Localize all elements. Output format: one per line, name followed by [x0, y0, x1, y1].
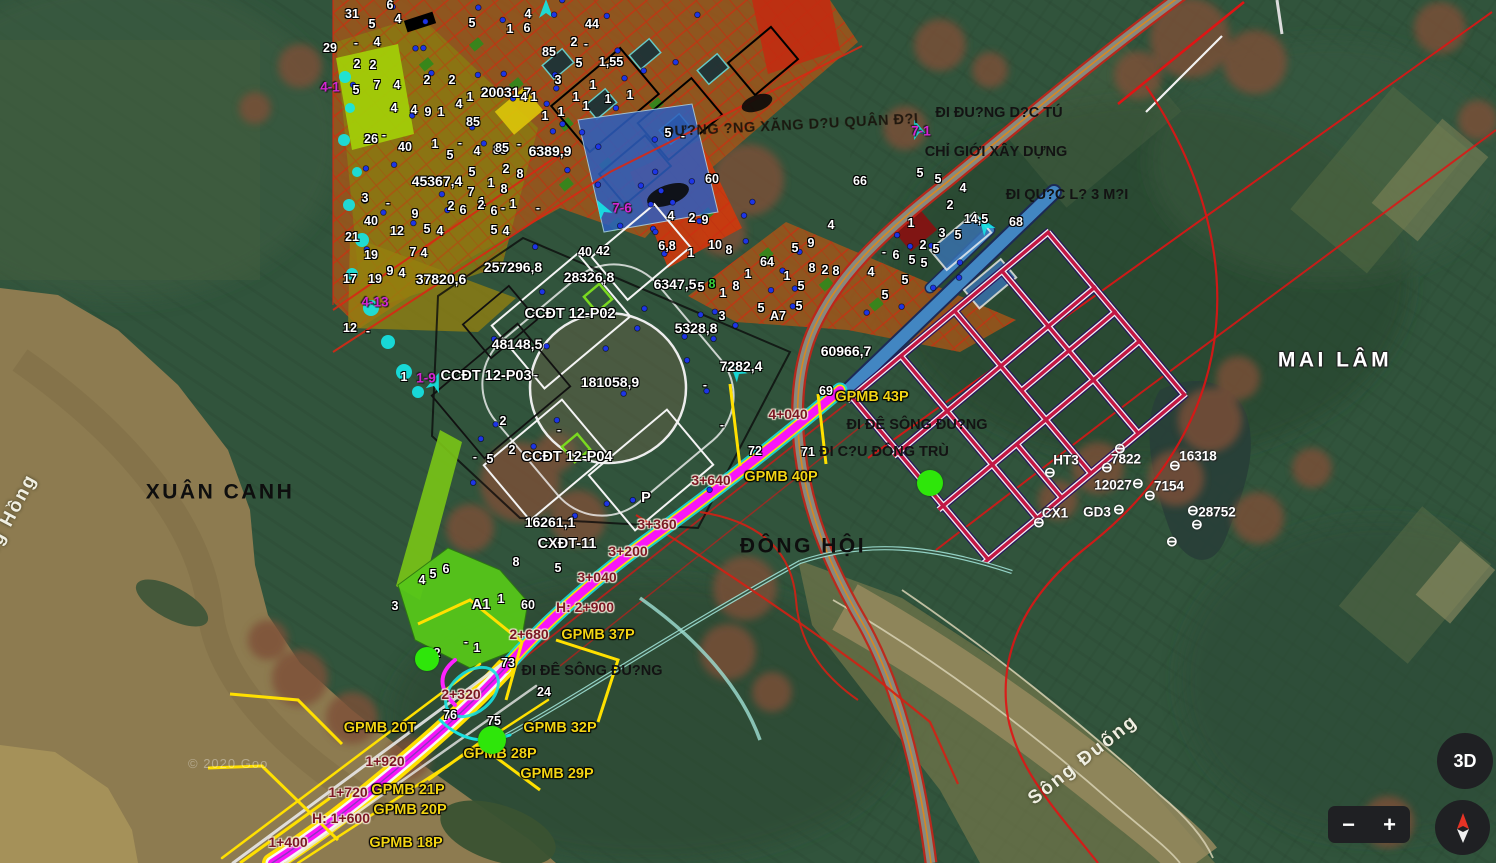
num-label: 42 — [596, 245, 610, 258]
green-point-marker — [415, 647, 439, 671]
survey-label: 16318 — [1179, 449, 1217, 463]
map-canvas[interactable]: XUÂN CANHĐÔNG HỘIMAI LÂMSông ĐuốngSông H… — [0, 0, 1496, 863]
num-label: 5 — [955, 229, 962, 242]
num-label: 1 — [590, 79, 597, 92]
num-label: 5 — [487, 453, 494, 466]
zoom-out-button[interactable]: − — [1336, 814, 1361, 836]
num-label: 2 — [822, 264, 829, 277]
num-label: 5 — [447, 149, 454, 162]
num-label: 5 — [909, 254, 916, 267]
compass-needle-icon — [1443, 808, 1483, 848]
area-label: 5328,8 — [675, 321, 718, 335]
num-label: 3 — [719, 310, 726, 323]
num-label: 85 — [466, 116, 480, 129]
num-label: - — [557, 424, 561, 437]
survey-point-icon: ⊖ — [1033, 515, 1045, 529]
num-label: 5 — [935, 173, 942, 186]
num-label: 1 — [627, 89, 634, 102]
num-label: 5 — [430, 568, 437, 581]
num-label: 4 — [503, 225, 510, 238]
num-label: 1 — [432, 138, 439, 151]
area-label: 181058,9 — [581, 375, 639, 389]
zone-label: CCĐT 12-P04 — [521, 450, 612, 465]
chain-label: 3+040 — [577, 570, 616, 584]
num-label: - — [386, 197, 390, 210]
num-label: 1 — [507, 23, 514, 36]
num-label: 3 — [362, 192, 369, 205]
num-label: 5 — [555, 562, 562, 575]
copyright-watermark: © 2020 Goo — [188, 756, 268, 771]
num-label: 1 — [498, 593, 505, 606]
num-label: 40 — [398, 141, 412, 154]
num-label: 5 — [353, 84, 360, 97]
num-label: 9 — [412, 208, 419, 221]
num-label: 5 — [424, 223, 431, 236]
num-label: 4 — [411, 104, 418, 117]
chain-label: 4+040 — [768, 407, 807, 421]
magenta-label: 7-1 — [911, 124, 931, 138]
num-label: 5 — [921, 257, 928, 270]
num-label: 29 — [323, 42, 337, 55]
num-label: 1 — [542, 110, 549, 123]
area-label: 45367,4 — [412, 174, 463, 188]
place-label: ĐÔNG HỘI — [740, 536, 866, 557]
num-label: 1 — [438, 106, 445, 119]
num-label: 2 — [449, 74, 456, 87]
num-label: 2 — [509, 444, 516, 457]
survey-point-icon: ⊖ — [1144, 488, 1156, 502]
area-label: 6347,5 — [654, 277, 697, 291]
green-point-marker — [478, 726, 506, 754]
num-label: 66 — [853, 175, 867, 188]
survey-point-icon: ⊖ — [1166, 534, 1178, 548]
num-label: 64 — [760, 256, 774, 269]
gpmb-label: GPMB 21P — [371, 783, 444, 798]
gpmb-label: GPMB 40P — [744, 470, 817, 485]
num-label: 1 — [745, 268, 752, 281]
num-label: - — [464, 636, 468, 649]
chain-label: 3+360 — [637, 517, 676, 531]
num-label: 2 — [920, 239, 927, 252]
area-label: 28326,8 — [564, 270, 615, 284]
num-label: 3 — [555, 74, 562, 87]
road-label: ĐI ĐÊ SÔNG ĐU?NG — [847, 418, 988, 433]
magenta-label: 7-6 — [612, 201, 632, 215]
num-label: 71 — [801, 446, 815, 459]
num-label: 8 — [833, 265, 840, 278]
road-label: ĐI ĐU?NG D?C TÚ — [935, 106, 1062, 121]
3d-view-label: 3D — [1453, 751, 1476, 772]
gpmb-label: GPMB 20T — [344, 721, 417, 736]
survey-point-icon: ⊖ — [1044, 465, 1056, 479]
num-label: - — [366, 325, 370, 338]
num-label: 2 — [500, 415, 507, 428]
num-label: 60 — [521, 599, 535, 612]
num-label: 1 — [510, 198, 517, 211]
num-label: 8 — [709, 278, 716, 291]
green-point-marker — [917, 470, 943, 496]
area-label: 16261,1 — [525, 515, 576, 529]
survey-point-icon: ⊖ — [1113, 502, 1125, 516]
zoom-in-button[interactable]: + — [1377, 814, 1402, 836]
road-label: ĐI ĐÊ SÔNG ĐU?NG — [522, 664, 663, 679]
num-label: 31 — [345, 8, 359, 21]
num-label: 4 — [399, 267, 406, 280]
num-label: 4 — [456, 98, 463, 111]
num-label: 8 — [733, 280, 740, 293]
num-label: 3 — [939, 227, 946, 240]
num-label: 1 — [605, 93, 612, 106]
num-label: 4 — [421, 247, 428, 260]
num-label: 76 — [443, 709, 457, 722]
num-label: - — [517, 138, 521, 151]
chain-label: 3+200 — [608, 544, 647, 558]
num-label: 1 — [583, 100, 590, 113]
num-label: 1 — [474, 642, 481, 655]
survey-label: 7822 — [1111, 452, 1141, 466]
num-label: 6 — [387, 0, 394, 11]
chain-label: 1+920 — [365, 754, 404, 768]
area-label: 48148,5 — [492, 337, 543, 351]
num-label: 24 — [537, 686, 551, 699]
num-label: - — [536, 202, 540, 215]
num-label: 40 — [364, 215, 378, 228]
num-label: 2 — [478, 199, 485, 212]
num-label: 5 — [917, 167, 924, 180]
num-label: - — [473, 451, 477, 464]
gpmb-label: GPMB 37P — [561, 628, 634, 643]
num-label: 5 — [469, 17, 476, 30]
chain-label: H: 2+900 — [556, 600, 614, 614]
num-label: 68 — [1009, 216, 1023, 229]
num-label: 2 — [424, 74, 431, 87]
road-label: CHỈ GIỚI XÂY DỰNG — [925, 145, 1068, 160]
num-label: 1 — [908, 217, 915, 230]
num-label: 5 — [698, 281, 705, 294]
zone-label: P — [641, 491, 651, 506]
num-label: 2 — [571, 36, 578, 49]
num-label: 19 — [368, 273, 382, 286]
num-label: 21 — [345, 231, 359, 244]
chain-label: H: 1+600 — [312, 811, 370, 825]
num-label: - — [703, 379, 707, 392]
num-label: 44 — [585, 18, 599, 31]
num-label: 4 — [395, 13, 402, 26]
num-label: - — [534, 369, 538, 382]
num-label: - — [382, 129, 386, 142]
num-label: 2 — [947, 199, 954, 212]
map-label-layer: XUÂN CANHĐÔNG HỘIMAI LÂMSông ĐuốngSông H… — [0, 0, 1496, 863]
num-label: 6 — [460, 204, 467, 217]
num-label: 69 — [819, 385, 833, 398]
num-label: 6,8 — [658, 240, 675, 253]
survey-label: 7154 — [1154, 479, 1184, 493]
num-label: 4 — [960, 182, 967, 195]
num-label: 4 — [437, 225, 444, 238]
num-label: 9 — [702, 214, 709, 227]
num-label: 6 — [524, 22, 531, 35]
num-label: 40 — [578, 246, 592, 259]
num-label: 5 — [882, 289, 889, 302]
num-label: 7 — [374, 79, 381, 92]
num-label: 4 — [525, 8, 532, 21]
num-label: 2 — [689, 212, 696, 225]
num-label: 8 — [726, 244, 733, 257]
num-label: 85 — [493, 144, 507, 157]
survey-label: CX1 — [1042, 506, 1068, 520]
area-label: 6389,9 — [529, 144, 572, 158]
num-label: 6 — [443, 563, 450, 576]
num-label: - — [720, 419, 724, 432]
3d-view-button[interactable]: 3D — [1437, 733, 1493, 789]
num-label: 12 — [390, 225, 404, 238]
gpmb-label: GPMB 18P — [369, 836, 442, 851]
num-label: - — [501, 202, 505, 215]
area-label: 20031,7 — [481, 85, 532, 99]
num-label: 5 — [792, 242, 799, 255]
num-label: 12 — [343, 322, 357, 335]
compass-control[interactable] — [1435, 800, 1490, 855]
chain-label: 2+320 — [441, 687, 480, 701]
gpmb-label: GPMB 32P — [523, 721, 596, 736]
gpmb-label: GPMB 43P — [835, 390, 908, 405]
num-label: 5 — [758, 302, 765, 315]
area-label: 7282,4 — [720, 359, 763, 373]
num-label: 5 — [576, 57, 583, 70]
survey-label: GD3 — [1083, 505, 1111, 519]
num-label: 19 — [364, 249, 378, 262]
num-label: 17 — [343, 273, 357, 286]
num-label: 4 — [474, 145, 481, 158]
chain-label: 1+720 — [328, 785, 367, 799]
gpmb-label: GPMB 20P — [373, 803, 446, 818]
num-label: 8 — [809, 262, 816, 275]
num-label: 1 — [688, 247, 695, 260]
num-label: - — [354, 37, 358, 50]
chain-label: 3+640 — [691, 473, 730, 487]
num-label: 85 — [495, 142, 509, 155]
zone-label: CXĐT-11 — [538, 537, 597, 552]
num-label: 8 — [517, 168, 524, 181]
magenta-label: 4-13 — [361, 295, 388, 309]
place-label: Sông Hồng — [0, 471, 40, 585]
num-label: 3 — [392, 600, 399, 613]
num-label: 5 — [491, 224, 498, 237]
survey-label: 12027 — [1094, 478, 1132, 492]
num-label: 1 — [573, 91, 580, 104]
zone-label: CCĐT 12-P02 — [524, 307, 615, 322]
num-label: 9 — [387, 265, 394, 278]
num-label: 4 — [374, 36, 381, 49]
num-label: 8 — [513, 556, 520, 569]
road-label: ĐƯ?NG ?NG XĂNG D?U QUÂN Đ?I — [663, 112, 919, 140]
survey-point-icon: ⊖ — [1169, 458, 1181, 472]
num-label: - — [584, 38, 588, 51]
num-label: 1 — [558, 106, 565, 119]
survey-point-icon: ⊖ — [1114, 441, 1126, 455]
num-label: - — [882, 246, 886, 259]
num-label: - — [458, 137, 462, 150]
survey-point-icon: ⊖ — [1187, 503, 1199, 517]
num-label: 4 — [668, 210, 675, 223]
place-label: MAI LÂM — [1278, 350, 1392, 371]
road-label: ĐI QU?C L? 3 M?I — [1006, 188, 1128, 203]
survey-label: HT3 — [1053, 453, 1079, 467]
num-label: 4 — [521, 91, 528, 104]
num-label: 8 — [501, 183, 508, 196]
num-label: 4 — [828, 219, 835, 232]
gpmb-label: GPMB 29P — [520, 767, 593, 782]
num-label: 1 — [401, 371, 408, 384]
place-label: Sông Đuống — [1025, 712, 1141, 809]
num-label: 1 — [467, 91, 474, 104]
survey-point-icon: ⊖ — [1101, 460, 1113, 474]
num-label: A7 — [770, 310, 786, 323]
zone-label: CCĐT 12-P03 — [440, 369, 531, 384]
num-label: 4 — [419, 574, 426, 587]
num-label: 2 — [503, 163, 510, 176]
num-label: 5 — [469, 166, 476, 179]
zoom-control: − + — [1328, 806, 1410, 843]
num-label: 4 — [868, 266, 875, 279]
survey-point-icon: ⊖ — [1191, 517, 1203, 531]
num-label: - — [681, 130, 685, 143]
num-label: 9 — [425, 106, 432, 119]
num-label: 6 — [893, 249, 900, 262]
num-label: 1 — [479, 196, 486, 209]
area-label: 60966,7 — [821, 344, 872, 358]
num-label: 5 — [933, 243, 940, 256]
num-label: 10 — [708, 239, 722, 252]
num-label: 5 — [902, 274, 909, 287]
num-label: 5 — [798, 280, 805, 293]
num-label: 2 — [354, 58, 361, 71]
num-label: 9 — [808, 237, 815, 250]
num-label: 1,55 — [599, 56, 623, 69]
survey-point-icon: ⊖ — [1132, 476, 1144, 490]
num-label: 26 — [364, 133, 378, 146]
num-label: 1 — [720, 287, 727, 300]
num-label: 5 — [665, 127, 672, 140]
num-label: 5 — [369, 18, 376, 31]
num-label: 85 — [542, 46, 556, 59]
num-label: 1 — [488, 177, 495, 190]
num-label: 73 — [501, 657, 515, 670]
chain-label: 1+400 — [268, 835, 307, 849]
num-label: 2 — [448, 200, 455, 213]
area-label: 257296,8 — [484, 260, 542, 274]
num-label: 7 — [468, 186, 475, 199]
num-label: 14,5 — [964, 213, 988, 226]
magenta-label: 4-1 — [320, 80, 340, 94]
num-label: 1 — [784, 270, 791, 283]
num-label: 4 — [394, 79, 401, 92]
road-label: ĐI C?U ĐÔNG TRÙ — [819, 445, 949, 460]
survey-label: 28752 — [1198, 505, 1236, 519]
chain-label: 2+680 — [509, 627, 548, 641]
place-label: XUÂN CANH — [146, 482, 295, 503]
num-label: 4 — [391, 102, 398, 115]
num-label: 7 — [410, 246, 417, 259]
num-label: 60 — [705, 173, 719, 186]
magenta-label: 1-9 — [416, 371, 436, 385]
num-label: 1 — [531, 91, 538, 104]
num-label: 5 — [796, 300, 803, 313]
num-label: 2 — [370, 59, 377, 72]
area-label: 37820,6 — [416, 272, 467, 286]
num-label: 72 — [748, 445, 762, 458]
zone-label: A1 — [472, 598, 491, 613]
num-label: 6 — [491, 205, 498, 218]
